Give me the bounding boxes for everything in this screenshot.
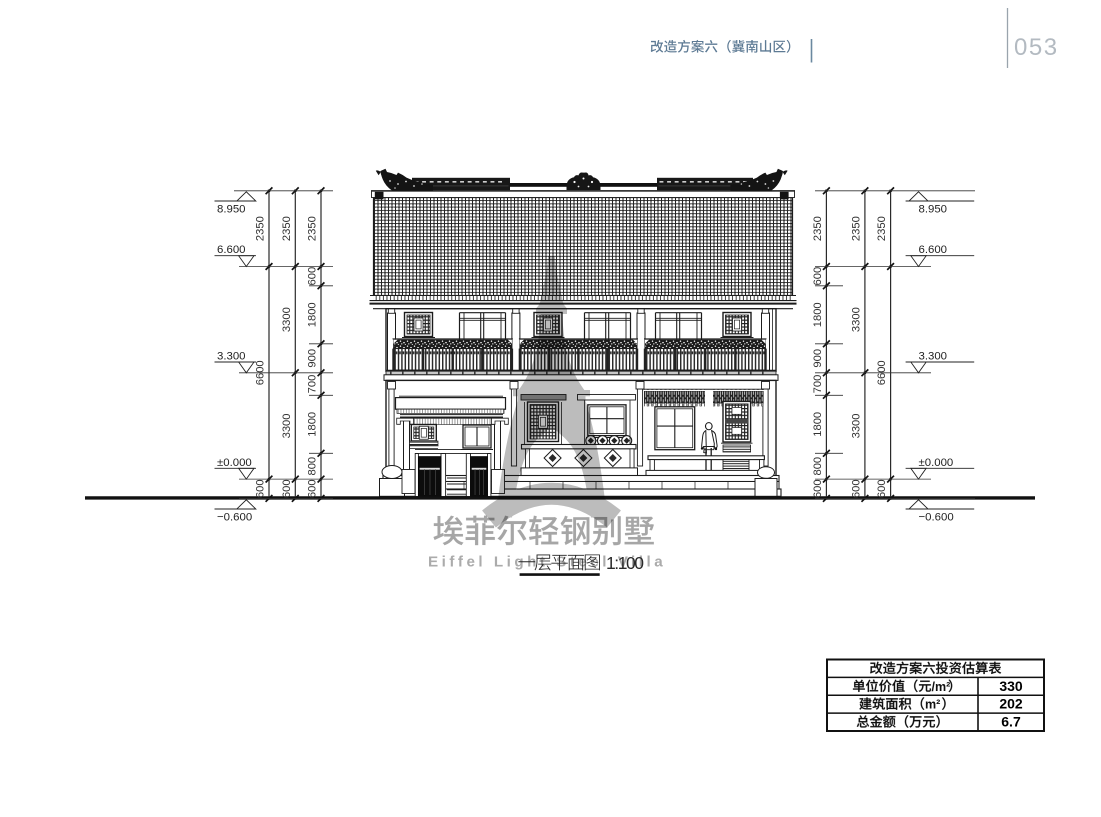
svg-text:3300: 3300 [281,307,293,332]
svg-text:330: 330 [999,678,1023,694]
svg-text:600: 600 [850,479,862,498]
svg-text:2350: 2350 [876,216,888,241]
svg-text:−0.600: −0.600 [919,511,954,523]
svg-text:3300: 3300 [850,414,862,439]
svg-text:202: 202 [999,696,1023,712]
svg-text:1800: 1800 [307,412,319,437]
svg-text:−0.600: −0.600 [217,511,252,523]
svg-text:900: 900 [812,349,824,368]
svg-text:600: 600 [307,479,319,498]
svg-text:6.7: 6.7 [1001,714,1021,730]
svg-text:1800: 1800 [307,302,319,327]
svg-text:±0.000: ±0.000 [217,457,252,469]
svg-text:600: 600 [255,479,267,498]
svg-text:3300: 3300 [850,307,862,332]
svg-text:3300: 3300 [281,414,293,439]
svg-text:2350: 2350 [307,216,319,241]
svg-text:600: 600 [812,479,824,498]
svg-text:8.950: 8.950 [217,203,246,215]
svg-text:700: 700 [307,375,319,394]
svg-text:1:100: 1:100 [606,553,644,573]
svg-text:3.300: 3.300 [217,351,246,363]
svg-text:2350: 2350 [255,216,267,241]
svg-text:8.950: 8.950 [919,203,948,215]
svg-text:1800: 1800 [812,412,824,437]
svg-text:600: 600 [307,267,319,286]
svg-text:3.300: 3.300 [919,351,948,363]
svg-text:6.600: 6.600 [217,244,246,256]
svg-text:1800: 1800 [812,302,824,327]
svg-text:800: 800 [812,457,824,476]
svg-text:6.600: 6.600 [919,244,948,256]
svg-text:600: 600 [876,479,888,498]
svg-text:m²: m² [925,698,940,712]
svg-text:2350: 2350 [812,216,824,241]
svg-text:900: 900 [307,349,319,368]
svg-text:/m²: /m² [932,680,951,694]
svg-text:800: 800 [307,457,319,476]
svg-text:2350: 2350 [281,216,293,241]
svg-text:700: 700 [812,375,824,394]
svg-text:053: 053 [1014,34,1059,61]
svg-text:600: 600 [812,267,824,286]
svg-text:600: 600 [281,479,293,498]
svg-text:2350: 2350 [850,216,862,241]
svg-text:±0.000: ±0.000 [919,457,954,469]
